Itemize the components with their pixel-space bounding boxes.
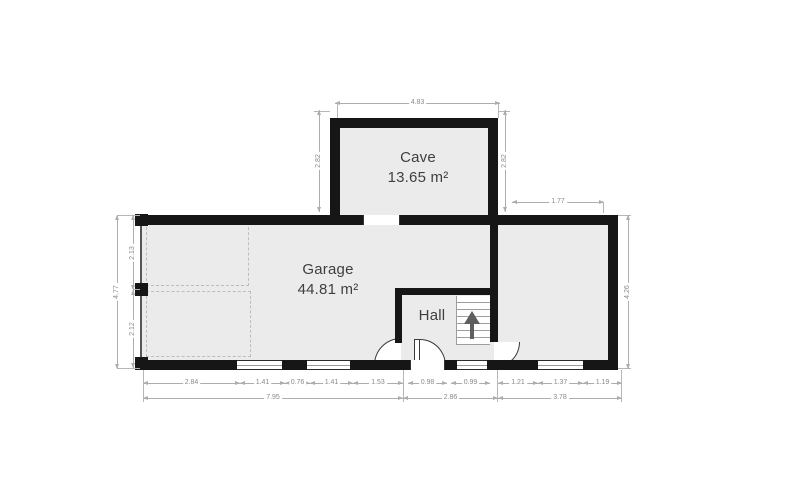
wall-bottom-1	[140, 360, 237, 370]
label-cave: Cave 13.65 m²	[343, 146, 493, 190]
dim-cave-right: 2.82	[499, 110, 511, 212]
dim-cave-left: 2.82	[313, 110, 325, 212]
dim-bottom-0-99: 0.99	[451, 377, 490, 389]
wall-cap	[410, 360, 411, 370]
wall-bottom-2	[282, 360, 307, 370]
garage-name: Garage	[302, 260, 353, 280]
window-1	[237, 360, 282, 370]
hall-name: Hall	[419, 306, 446, 326]
wall-hall-top	[395, 288, 490, 295]
dim-left-outer: 4.77	[111, 215, 123, 369]
dim-total-3-78: 3.78	[498, 392, 622, 404]
dim-bottom-1-19: 1.19	[583, 377, 622, 389]
dim-total-7-95: 7.95	[143, 392, 403, 404]
dim-bottom-1-37: 1.37	[538, 377, 583, 389]
wall-bottom-4	[445, 360, 457, 370]
dim-left-lower: 2.12	[127, 290, 139, 368]
dim-total-2-86: 2.86	[403, 392, 498, 404]
wall-cap	[363, 215, 364, 225]
cave-area: 13.65 m²	[388, 168, 449, 188]
wall-divider	[490, 225, 498, 342]
dim-bottom-0-76: 0.76	[285, 377, 310, 389]
wall-right	[608, 215, 618, 370]
dim-bottom-2-84: 2.84	[143, 377, 240, 389]
dim-bottom-1-41b: 1.41	[310, 377, 353, 389]
label-hall: Hall	[401, 306, 463, 326]
dim-left-upper: 2.13	[127, 215, 139, 290]
cave-name: Cave	[400, 148, 436, 168]
arrow-up-stem	[470, 323, 474, 339]
wall-top-a	[140, 215, 363, 225]
window-3	[457, 360, 487, 370]
wall-cap	[399, 215, 400, 225]
wall-cap	[444, 360, 445, 370]
dim-cave-top: 4.83	[335, 97, 500, 109]
cave-door-opening	[363, 215, 400, 225]
dim-right-outer: 4.26	[622, 215, 634, 369]
dim-annex-top: 1.77	[512, 196, 604, 208]
dim-bottom-0-98: 0.98	[408, 377, 447, 389]
wall-bottom-5	[487, 360, 538, 370]
parking-space-2	[146, 291, 251, 357]
label-garage: Garage 44.81 m²	[248, 258, 408, 302]
dim-bottom-1-21: 1.21	[498, 377, 538, 389]
wall-cave-left	[330, 118, 340, 225]
wall-bottom-6	[583, 360, 618, 370]
entry-door-opening	[410, 360, 445, 370]
garage-area: 44.81 m²	[298, 280, 359, 300]
window-4	[538, 360, 583, 370]
wall-top-b	[400, 215, 618, 225]
dim-bottom-1-41a: 1.41	[240, 377, 285, 389]
wall-bottom-3	[350, 360, 410, 370]
wall-cave-top	[330, 118, 498, 128]
parking-space-1	[146, 222, 249, 286]
floorplan-canvas: 4.83 2.82 2.82 1.77 4.77 2.13 2.12 4.26 …	[0, 0, 800, 495]
window-2	[307, 360, 350, 370]
dim-bottom-1-53: 1.53	[353, 377, 403, 389]
